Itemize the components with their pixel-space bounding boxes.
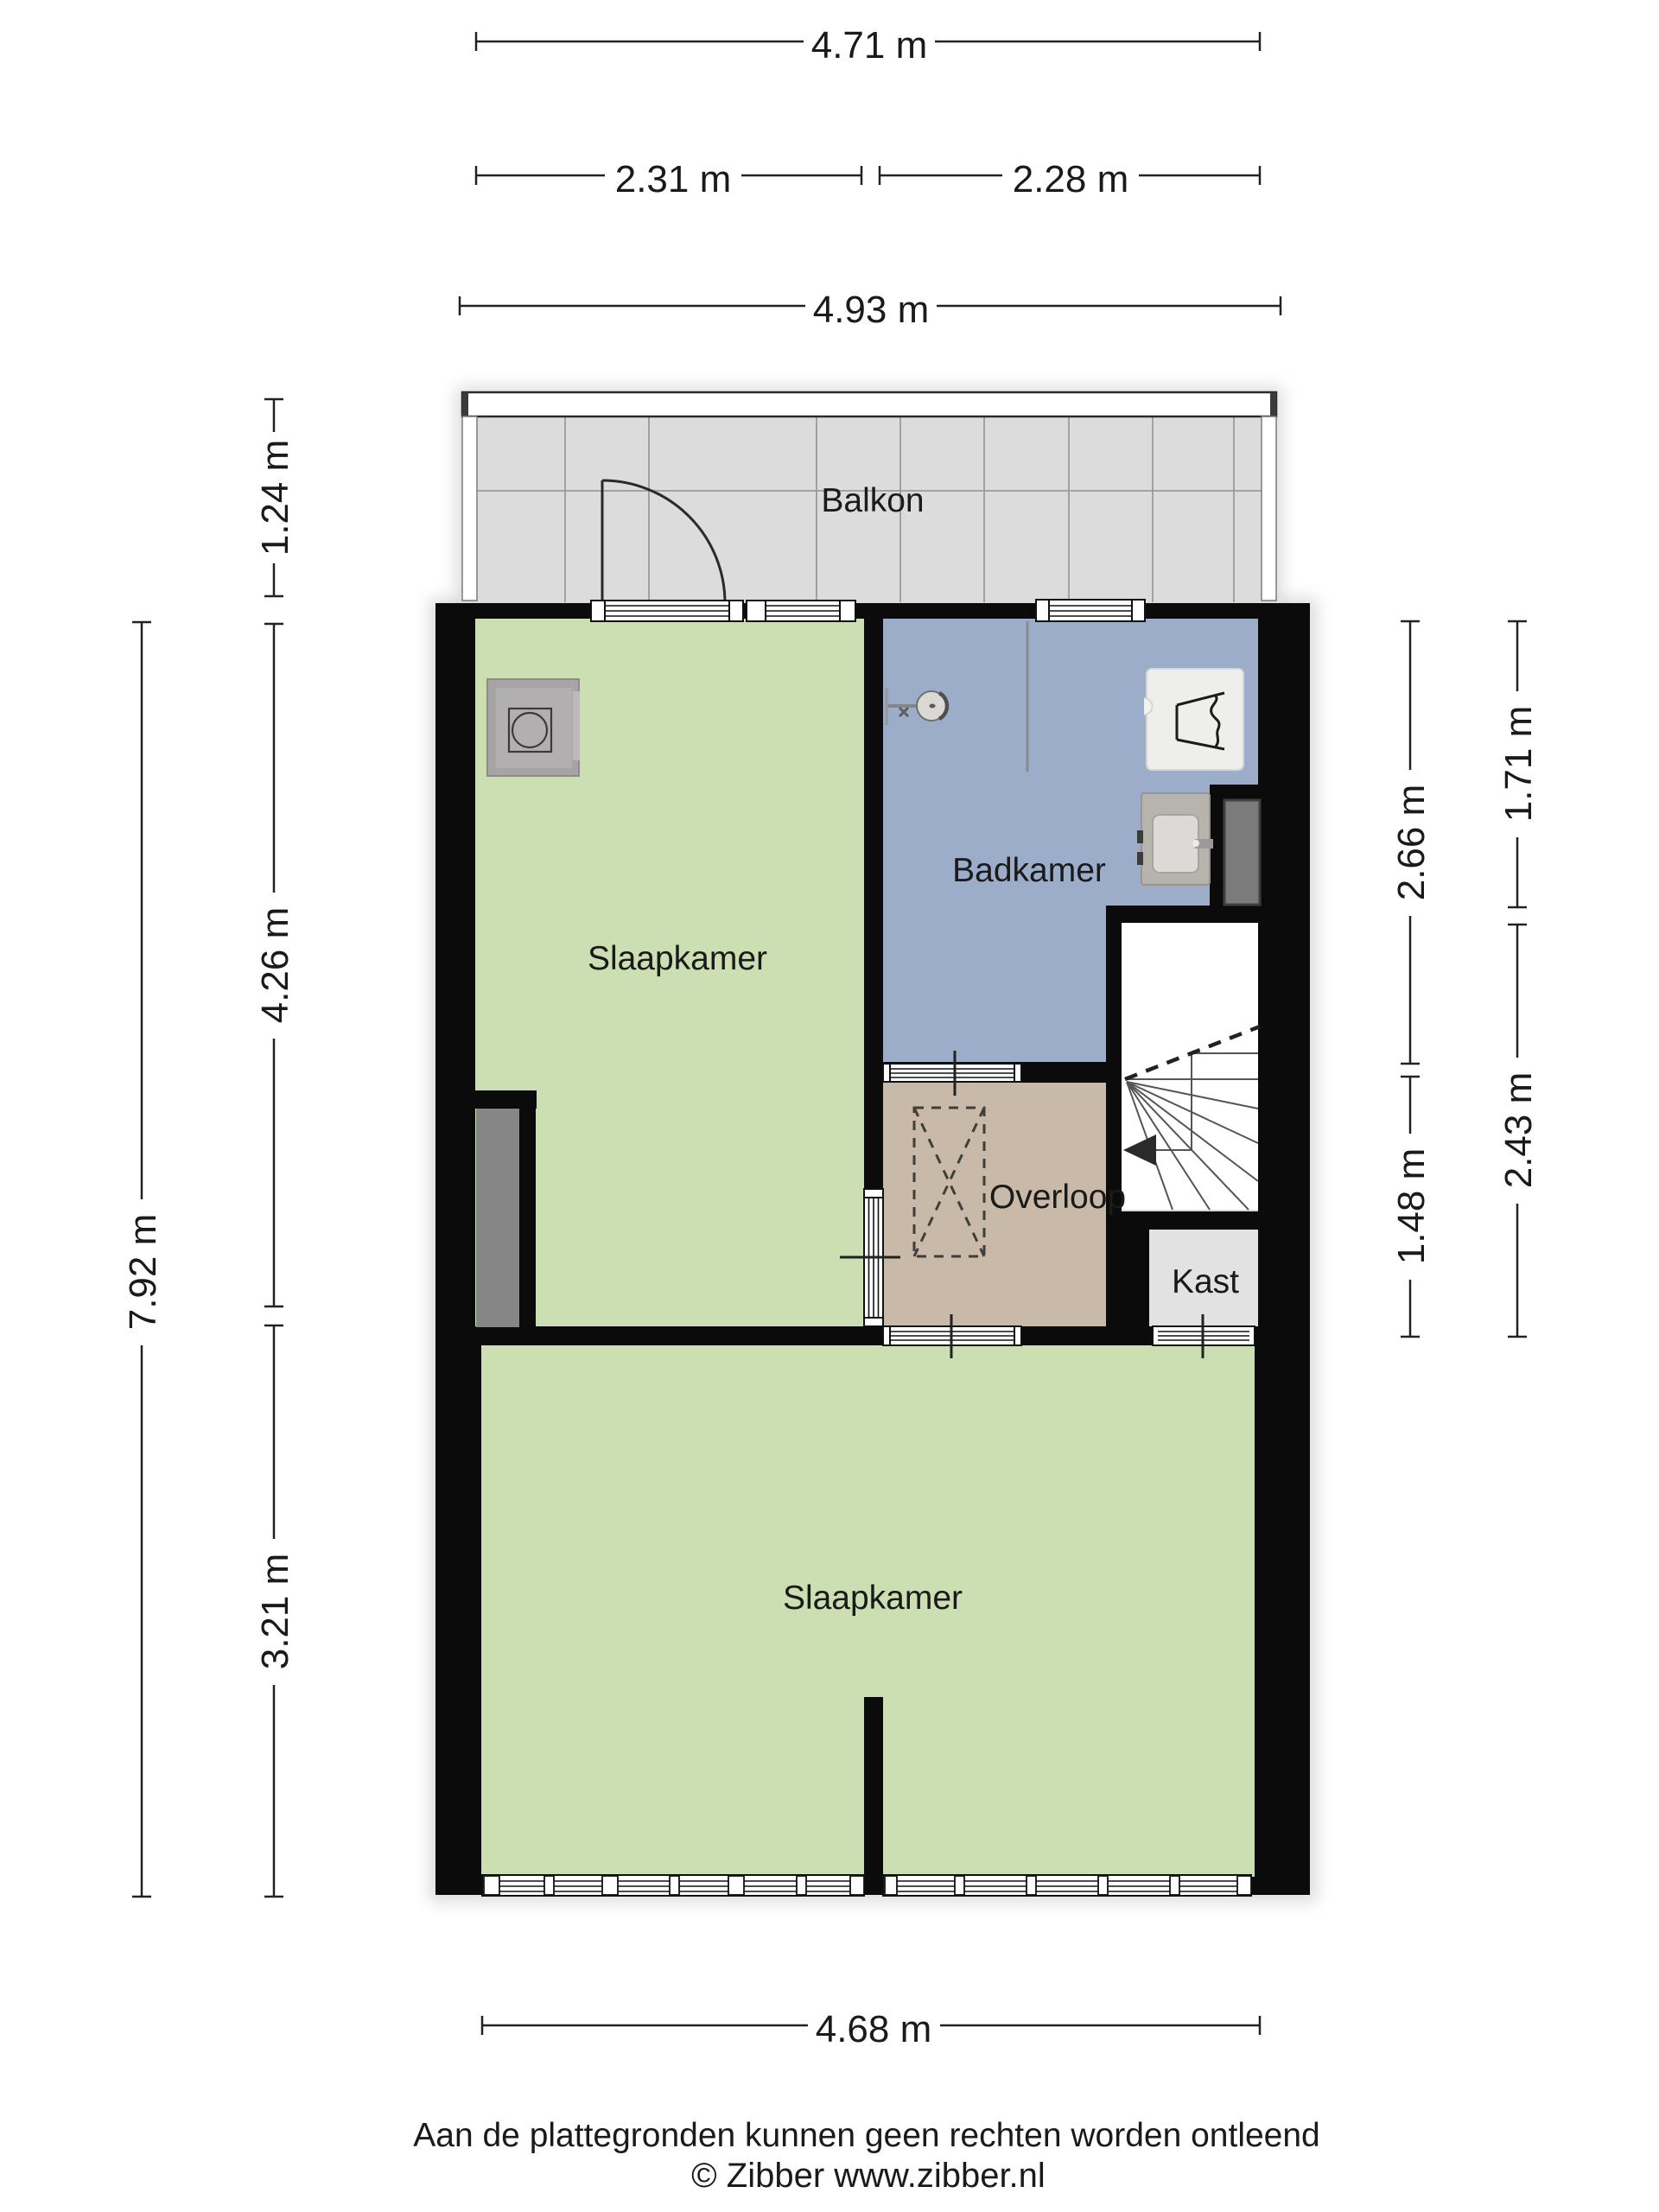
svg-text:1.24 m: 1.24 m <box>254 440 296 556</box>
svg-text:4.26 m: 4.26 m <box>254 907 296 1024</box>
svg-text:Balkon: Balkon <box>821 482 924 519</box>
svg-text:1.71 m: 1.71 m <box>1497 706 1540 823</box>
svg-text:2.28 m: 2.28 m <box>1013 158 1129 200</box>
svg-text:2.43 m: 2.43 m <box>1497 1072 1540 1189</box>
svg-text:Overloop: Overloop <box>989 1179 1126 1216</box>
svg-text:Badkamer: Badkamer <box>952 852 1106 889</box>
svg-text:Aan de plattegronden kunnen ge: Aan de plattegronden kunnen geen rechten… <box>413 2117 1320 2154</box>
svg-text:1.48 m: 1.48 m <box>1390 1148 1433 1265</box>
svg-text:7.92 m: 7.92 m <box>122 1214 164 1331</box>
svg-text:4.71 m: 4.71 m <box>811 24 928 67</box>
svg-text:3.21 m: 3.21 m <box>254 1554 296 1670</box>
svg-text:4.68 m: 4.68 m <box>816 2008 932 2050</box>
svg-text:2.66 m: 2.66 m <box>1390 785 1433 901</box>
svg-text:© Zibber www.zibber.nl: © Zibber www.zibber.nl <box>691 2157 1046 2195</box>
svg-text:4.93 m: 4.93 m <box>813 289 930 331</box>
svg-text:Kast: Kast <box>1172 1263 1239 1300</box>
svg-text:Slaapkamer: Slaapkamer <box>783 1580 963 1617</box>
svg-text:2.31 m: 2.31 m <box>615 158 732 200</box>
svg-text:Slaapkamer: Slaapkamer <box>588 940 767 977</box>
